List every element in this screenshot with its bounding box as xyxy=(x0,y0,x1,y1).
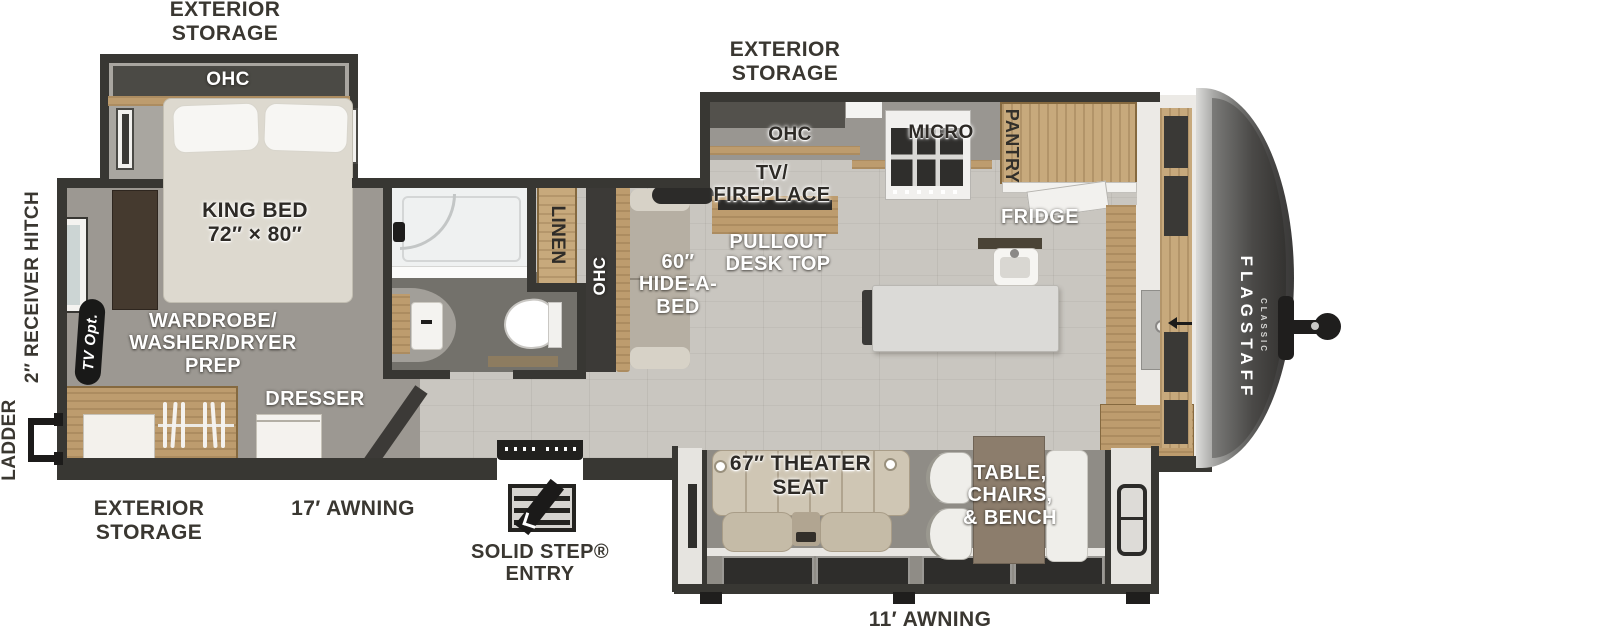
slide-foot xyxy=(1126,592,1150,604)
bed-pillow-right xyxy=(263,103,349,154)
brand-name: FLAGSTAFF xyxy=(1236,256,1256,401)
hall-ohc-label: OHC xyxy=(590,257,609,296)
king-bed-label: KING BED 72″ × 80″ xyxy=(175,199,335,246)
theater-cushion-left xyxy=(722,512,794,552)
fridge-label: FRIDGE xyxy=(995,206,1085,228)
kitchen-ohc-label: OHC xyxy=(750,124,830,145)
toilet-shelf xyxy=(488,356,558,367)
linen-label-wrap: LINEN xyxy=(546,185,568,285)
entry-platform-tread xyxy=(505,447,535,451)
living-slide-left-inner xyxy=(702,450,707,588)
exterior-storage-label-top-left: EXTERIOR STORAGE xyxy=(150,0,300,45)
island-sink-basin xyxy=(1000,257,1030,278)
bottom-wall-mid-seg xyxy=(583,458,674,480)
front-ohc-arrow-icon xyxy=(1176,322,1192,325)
top-wall-front-seg xyxy=(700,92,1160,102)
bedroom-window-left-pane xyxy=(122,114,129,164)
vanity-cabinet xyxy=(392,294,410,354)
entry-platform-tread xyxy=(546,447,576,451)
tv-fireplace-label: TV/ FIREPLACE xyxy=(702,162,842,207)
bath-wall-bottom-left xyxy=(383,370,450,379)
rear-window-pane xyxy=(67,225,80,305)
exterior-storage-label-top-right: EXTERIOR STORAGE xyxy=(705,38,865,85)
tv-opt-label: TV Opt. xyxy=(80,313,101,372)
hideabed-armrest-bottom xyxy=(630,347,690,369)
hanger-icon xyxy=(163,402,167,448)
living-slide-right-window-divider xyxy=(1121,517,1143,520)
ladder-mount-icon xyxy=(54,452,63,465)
living-slide-bottom xyxy=(674,584,1159,594)
hanger-icon xyxy=(221,402,225,448)
dinette-label: TABLE, CHAIRS, & BENCH xyxy=(948,462,1072,529)
front-cabinet-slot-2 xyxy=(1164,176,1188,236)
hitch-pin-icon xyxy=(1311,322,1319,330)
toilet-tank xyxy=(548,302,562,348)
brand-series-wrap: CLASSIC xyxy=(1258,266,1270,386)
exterior-storage-label-bottom-left: EXTERIOR STORAGE xyxy=(73,497,225,544)
living-slide-right-window xyxy=(1117,484,1147,556)
living-slide-window-1 xyxy=(722,556,814,586)
pullout-desk-label: PULLOUT DESK TOP xyxy=(708,231,848,276)
front-cabinet-slot-3 xyxy=(1164,332,1188,392)
range-knobs xyxy=(893,190,961,194)
top-wall-mid-seg xyxy=(352,178,710,188)
bed-pillow-left xyxy=(172,103,260,154)
bottom-wall-rear-seg xyxy=(57,458,497,480)
living-slide-right-outer xyxy=(1151,446,1159,594)
bedroom-ohc-label: OHC xyxy=(188,69,268,90)
ladder-label-wrap: LADDER xyxy=(0,365,21,515)
slide-foot xyxy=(700,592,722,604)
receiver-hitch-label: 2″ RECEIVER HITCH xyxy=(22,191,43,383)
pantry-label: PANTRY xyxy=(1002,109,1022,183)
kitchen-shelf-edge-1 xyxy=(710,146,860,155)
dresser-label: DRESSER xyxy=(255,388,375,410)
kitchen-window xyxy=(846,102,882,118)
theater-seat-label: 67″ THEATER SEAT xyxy=(718,452,883,499)
kitchen-island xyxy=(872,285,1059,352)
brand-name-wrap: FLAGSTAFF xyxy=(1235,243,1257,413)
ladder-label: LADDER xyxy=(0,399,21,481)
front-ohc-arrowhead-icon xyxy=(1168,317,1177,329)
bath-wall-lower-right xyxy=(577,288,586,379)
shower-head-icon xyxy=(393,222,405,242)
theater-console-tray xyxy=(796,532,816,542)
linen-label: LINEN xyxy=(546,206,567,265)
vanity-sink xyxy=(411,302,443,350)
front-cabinet-slot-4 xyxy=(1164,400,1188,444)
hanger-icon xyxy=(203,402,207,448)
kitchen-step-wall xyxy=(700,92,710,188)
dresser-top-line xyxy=(256,420,320,422)
ladder-mount-icon xyxy=(54,413,63,426)
brand-series: CLASSIC xyxy=(1260,298,1269,354)
wardrobe-label: WARDROBE/ WASHER/DRYER PREP xyxy=(118,310,308,377)
receiver-hitch-label-wrap: 2″ RECEIVER HITCH xyxy=(22,177,44,397)
hall-ohc-wrap: OHC xyxy=(589,226,611,326)
bath-wall-upper-right xyxy=(527,186,536,288)
hanger-icon xyxy=(181,402,185,448)
rear-wall xyxy=(57,178,67,480)
living-slide-left-window xyxy=(688,484,697,548)
pantry-label-wrap: PANTRY xyxy=(1001,86,1023,206)
top-wall-rear-seg xyxy=(57,178,104,188)
micro-label: MICRO xyxy=(900,122,982,143)
island-faucet-icon xyxy=(1010,249,1019,258)
slide-foot xyxy=(893,592,915,604)
awning-17-label: 17′ AWNING xyxy=(280,497,426,521)
awning-11-label: 11′ AWNING xyxy=(855,608,1005,629)
front-cabinet-slot-1 xyxy=(1164,116,1188,168)
living-slide-window-2 xyxy=(816,556,910,586)
solid-step-entry-label: SOLID STEP® ENTRY xyxy=(462,541,618,586)
rv-floorplan: OHC KING BED 72″ × 80″ TV Opt. WARDROBE/… xyxy=(0,0,1600,629)
bath-wall-bottom-right xyxy=(513,370,586,379)
shower-curb xyxy=(392,266,527,278)
bedroom-closet xyxy=(112,190,158,310)
washer-dryer-prep-box xyxy=(83,414,155,460)
theater-lamp-icon xyxy=(884,458,897,471)
theater-cushion-right xyxy=(820,512,892,552)
bath-wall-left xyxy=(383,186,392,379)
vanity-faucet-icon xyxy=(421,320,432,324)
